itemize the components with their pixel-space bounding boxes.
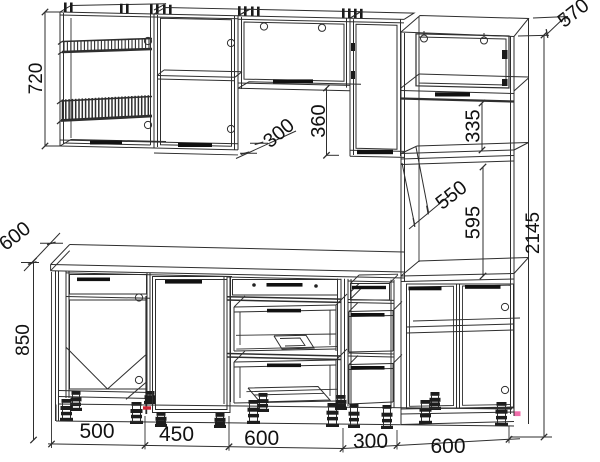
svg-text:360: 360 xyxy=(308,104,330,137)
svg-text:720: 720 xyxy=(26,63,47,95)
svg-text:300: 300 xyxy=(353,430,388,453)
svg-text:850: 850 xyxy=(13,324,34,356)
svg-text:595: 595 xyxy=(462,206,484,239)
svg-text:450: 450 xyxy=(159,423,194,446)
svg-text:2145: 2145 xyxy=(523,212,544,254)
svg-text:500: 500 xyxy=(79,420,114,443)
svg-text:600: 600 xyxy=(244,427,279,450)
svg-text:600: 600 xyxy=(430,435,465,457)
svg-text:335: 335 xyxy=(462,109,484,142)
